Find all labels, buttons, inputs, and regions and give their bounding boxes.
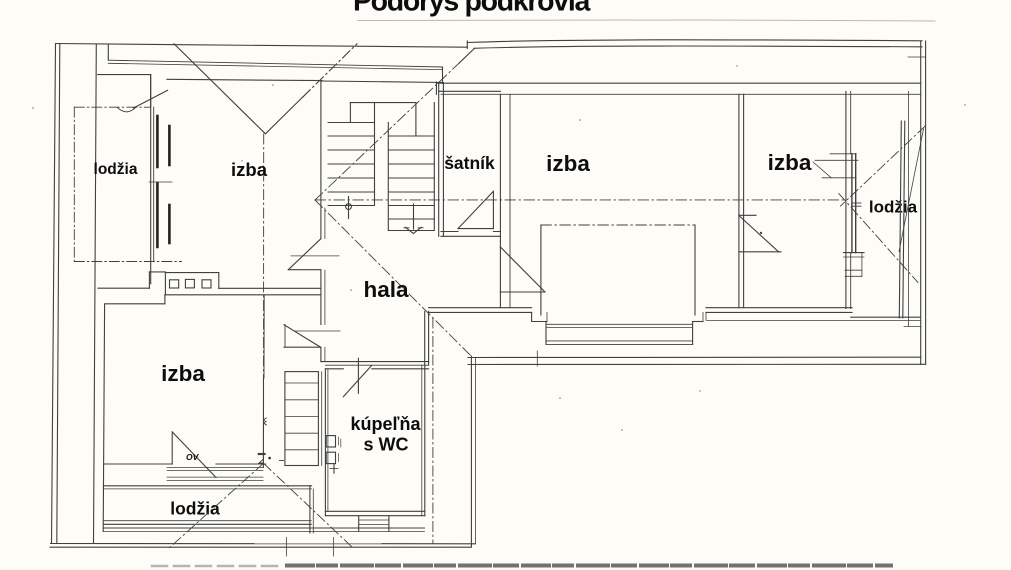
svg-text:hala: hala [363, 277, 409, 302]
svg-text:s WC: s WC [364, 435, 409, 455]
svg-text:izba: izba [231, 159, 268, 180]
svg-text:izba: izba [161, 361, 205, 386]
svg-text:OV: OV [186, 452, 200, 462]
svg-text:Pôdorys podkrovia: Pôdorys podkrovia [353, 0, 591, 18]
svg-text:lodžia: lodžia [170, 499, 220, 519]
svg-text:izba: izba [768, 150, 812, 175]
svg-text:šatník: šatník [444, 153, 495, 173]
svg-text:lodžia: lodžia [94, 161, 138, 178]
svg-text:izba: izba [546, 151, 590, 176]
svg-text:kúpeľňa: kúpeľňa [351, 414, 422, 434]
svg-text:lodžia: lodžia [869, 198, 918, 217]
